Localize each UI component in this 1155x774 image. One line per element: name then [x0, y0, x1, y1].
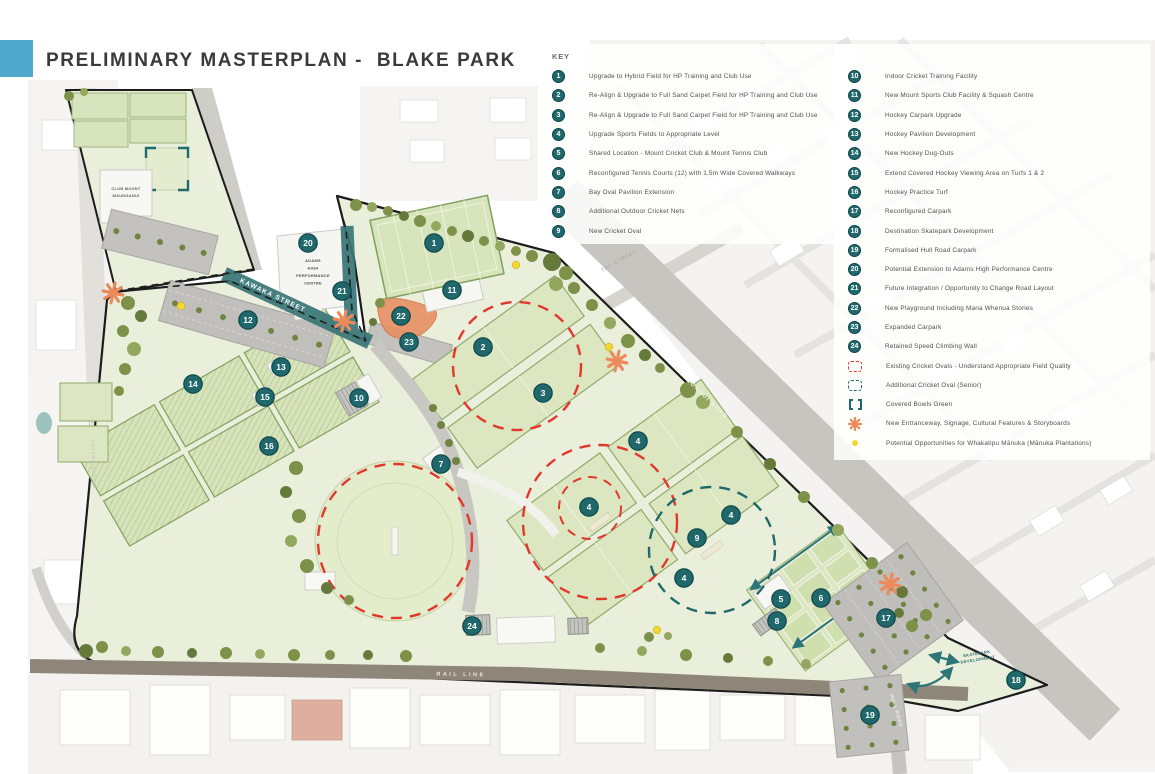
manuka-dot-icon [605, 343, 613, 351]
key-item: Additional Cricket Oval (Senior) [848, 376, 1153, 395]
key-item-label: Bay Oval Pavilion Extension [589, 189, 674, 196]
map-badge-number: 5 [779, 594, 784, 604]
key-badge: 22 [848, 302, 861, 315]
key-item: 18Destination Skatepark Development [848, 221, 1153, 240]
key-item-label: Reconfigured Carpark [885, 208, 952, 215]
key-badge: 6 [552, 167, 565, 180]
map-badge-number: 23 [404, 337, 414, 347]
key-item-label: Formalised Hull Road Carpark [885, 247, 977, 254]
key-badge: 9 [552, 225, 565, 238]
map-badge-number: 10 [354, 393, 364, 403]
key-badge: 14 [848, 147, 861, 160]
key-item: 24Retained Speed Climbing Wall [848, 337, 1153, 356]
key-item: 5Shared Location - Mount Cricket Club & … [552, 144, 852, 163]
industrial-building-peach [292, 700, 342, 740]
map-badge-number: 4 [682, 573, 687, 583]
key-item-label: Potential Opportunities for Whakatipu Mā… [886, 440, 1092, 447]
key-item: Covered Bowls Green [848, 395, 1153, 414]
key-item: New Entranceway, Signage, Cultural Featu… [848, 414, 1153, 433]
key-badge: 10 [848, 70, 861, 83]
key-badge: 21 [848, 282, 861, 295]
key-badge: 7 [552, 186, 565, 199]
key-badge: 13 [848, 128, 861, 141]
map-badge-number: 8 [775, 616, 780, 626]
key-item-label: Hockey Carpark Upgrade [885, 112, 962, 119]
key-item: 8Additional Outdoor Cricket Nets [552, 202, 852, 221]
key-badge: 18 [848, 225, 861, 238]
key-item: 6Reconfigured Tennis Courts (12) with 1.… [552, 163, 852, 182]
key-badge: 23 [848, 321, 861, 334]
key-item: 9New Cricket Oval [552, 221, 852, 240]
adams-label-3: PERFORMANCE [296, 273, 330, 278]
map-badge-number: 4 [729, 510, 734, 520]
map-badge-number: 16 [264, 441, 274, 451]
map-badge-number: 22 [396, 311, 406, 321]
map-badge-number: 1 [432, 238, 437, 248]
map-badge-number: 17 [881, 613, 891, 623]
page-title: PRELIMINARY MASTERPLAN - BLAKE PARK [46, 50, 516, 72]
adams-label-1: ADAMS [305, 258, 321, 263]
map-badge-number: 4 [636, 436, 641, 446]
key-item-label: Destination Skatepark Development [885, 228, 994, 235]
map-badge-number: 20 [303, 238, 313, 248]
key-item: 21Future Integration / Opportunity to Ch… [848, 279, 1153, 298]
key-badge: 8 [552, 205, 565, 218]
key-item: 3Re-Align & Upgrade to Full Sand Carpet … [552, 106, 852, 125]
key-item: 20Potential Extension to Adams High Perf… [848, 260, 1153, 279]
bay-oval [315, 461, 475, 621]
key-item: 2Re-Align & Upgrade to Full Sand Carpet … [552, 86, 852, 105]
key-item-label: Extend Covered Hockey Viewing Area on Tu… [885, 170, 1044, 177]
key-item-label: Additional Cricket Oval (Senior) [886, 382, 982, 389]
grandstand [568, 618, 589, 635]
key-item: 23Expanded Carpark [848, 318, 1153, 337]
map-badge-number: 21 [337, 286, 347, 296]
key-item: 22New Playground Including Mana Whenua S… [848, 299, 1153, 318]
key-item-label: Reconfigured Tennis Courts (12) with 1.5… [589, 170, 795, 177]
key-badge: 1 [552, 70, 565, 83]
title-accent-square [0, 40, 33, 77]
key-item: 1Upgrade to Hybrid Field for HP Training… [552, 67, 852, 86]
adams-label-2: HIGH [308, 266, 319, 271]
club-mount-label-1: CLUB MOUNT [111, 186, 140, 191]
key-badge: 17 [848, 205, 861, 218]
teal-bracket-icon [848, 399, 862, 410]
key-item-label: Potential Extension to Adams High Perfor… [885, 266, 1053, 273]
key-item-label: Additional Outdoor Cricket Nets [589, 208, 685, 215]
key-item: 19Formalised Hull Road Carpark [848, 241, 1153, 260]
manuka-dot-icon [512, 261, 520, 269]
map-badge-number: 18 [1011, 675, 1021, 685]
key-item: 17Reconfigured Carpark [848, 202, 1153, 221]
map-badge-number: 12 [243, 315, 253, 325]
key-item-label: New Entranceway, Signage, Cultural Featu… [886, 420, 1070, 427]
map-badge-number: 3 [541, 388, 546, 398]
key-item-label: New Mount Sports Club Facility & Squash … [885, 92, 1034, 99]
key-item-label: Hockey Practice Turf [885, 189, 948, 196]
key-item-label: New Playground Including Mana Whenua Sto… [885, 305, 1033, 312]
yellow-dot-icon [848, 440, 862, 446]
key-item-label: Upgrade Sports Fields to Appropriate Lev… [589, 131, 720, 138]
key-item-label: New Hockey Dug-Outs [885, 150, 954, 157]
map-badge-number: 2 [481, 342, 486, 352]
key-item-label: Covered Bowls Green [886, 401, 952, 408]
key-item-label: Re-Align & Upgrade to Full Sand Carpet F… [589, 92, 818, 99]
key-item: 15Extend Covered Hockey Viewing Area on … [848, 163, 1153, 182]
key-item: 13Hockey Pavilion Development [848, 125, 1153, 144]
key-badge: 16 [848, 186, 861, 199]
map-badge-number: 7 [439, 459, 444, 469]
orange-asterisk-icon [848, 417, 862, 431]
key-item: 4Upgrade Sports Fields to Appropriate Le… [552, 125, 852, 144]
key-item-label: Hockey Pavilion Development [885, 131, 975, 138]
key-badge: 5 [552, 147, 565, 160]
map-badge-number: 11 [448, 285, 457, 295]
key-item: 14New Hockey Dug-Outs [848, 144, 1153, 163]
map-badge-number: 13 [276, 362, 286, 372]
key-item: 11New Mount Sports Club Facility & Squas… [848, 86, 1153, 105]
map-badge-number: 4 [587, 502, 592, 512]
key-item: Existing Cricket Ovals - Understand Appr… [848, 356, 1153, 375]
map-badge-number: 9 [695, 533, 700, 543]
pond [36, 412, 52, 434]
key-badge: 15 [848, 167, 861, 180]
club-mount-label-2: MAUNGANUI [113, 193, 140, 198]
key-item: 7Bay Oval Pavilion Extension [552, 183, 852, 202]
key-item: 16Hockey Practice Turf [848, 183, 1153, 202]
key-item: Potential Opportunities for Whakatipu Mā… [848, 434, 1153, 453]
key-badge: 11 [848, 89, 861, 102]
key-heading: KEY [552, 52, 570, 61]
key-badge: 3 [552, 109, 565, 122]
key-column-left: 1Upgrade to Hybrid Field for HP Training… [552, 67, 852, 241]
red-dashed-oval-icon [848, 361, 862, 372]
key-item-label: Shared Location - Mount Cricket Club & M… [589, 150, 767, 157]
key-item-label: New Cricket Oval [589, 228, 642, 235]
key-item-label: Upgrade to Hybrid Field for HP Training … [589, 73, 752, 80]
key-badge: 24 [848, 340, 861, 353]
key-item-label: Re-Align & Upgrade to Full Sand Carpet F… [589, 112, 818, 119]
masterplan-page: TAWA STREET KAWAKA STREET TAY STREET MAU… [0, 0, 1155, 774]
key-badge: 20 [848, 263, 861, 276]
key-item-label: Existing Cricket Ovals - Understand Appr… [886, 363, 1071, 370]
key-badge: 19 [848, 244, 861, 257]
key-item: 10Indoor Cricket Training Facility [848, 67, 1153, 86]
key-badge: 12 [848, 109, 861, 122]
key-item-label: Expanded Carpark [885, 324, 942, 331]
adams-label-4: CENTRE [304, 281, 322, 286]
key-badge: 2 [552, 89, 565, 102]
map-badge-number: 19 [865, 710, 875, 720]
key-item-label: Future Integration / Opportunity to Chan… [885, 285, 1054, 292]
manuka-dot-icon [653, 626, 661, 634]
map-badge-number: 6 [819, 593, 824, 603]
teal-dashed-oval-icon [848, 380, 862, 391]
key-column-right: 10Indoor Cricket Training Facility11New … [848, 67, 1153, 453]
rail-line-label: RAIL LINE [436, 672, 485, 679]
map-badge-number: 15 [260, 392, 270, 402]
map-badge-number: 24 [467, 621, 477, 631]
key-item: 12Hockey Carpark Upgrade [848, 106, 1153, 125]
key-badge: 4 [552, 128, 565, 141]
map-badge-number: 14 [188, 379, 198, 389]
manuka-dot-icon [177, 302, 185, 310]
key-item-label: Indoor Cricket Training Facility [885, 73, 977, 80]
key-item-label: Retained Speed Climbing Wall [885, 343, 977, 350]
